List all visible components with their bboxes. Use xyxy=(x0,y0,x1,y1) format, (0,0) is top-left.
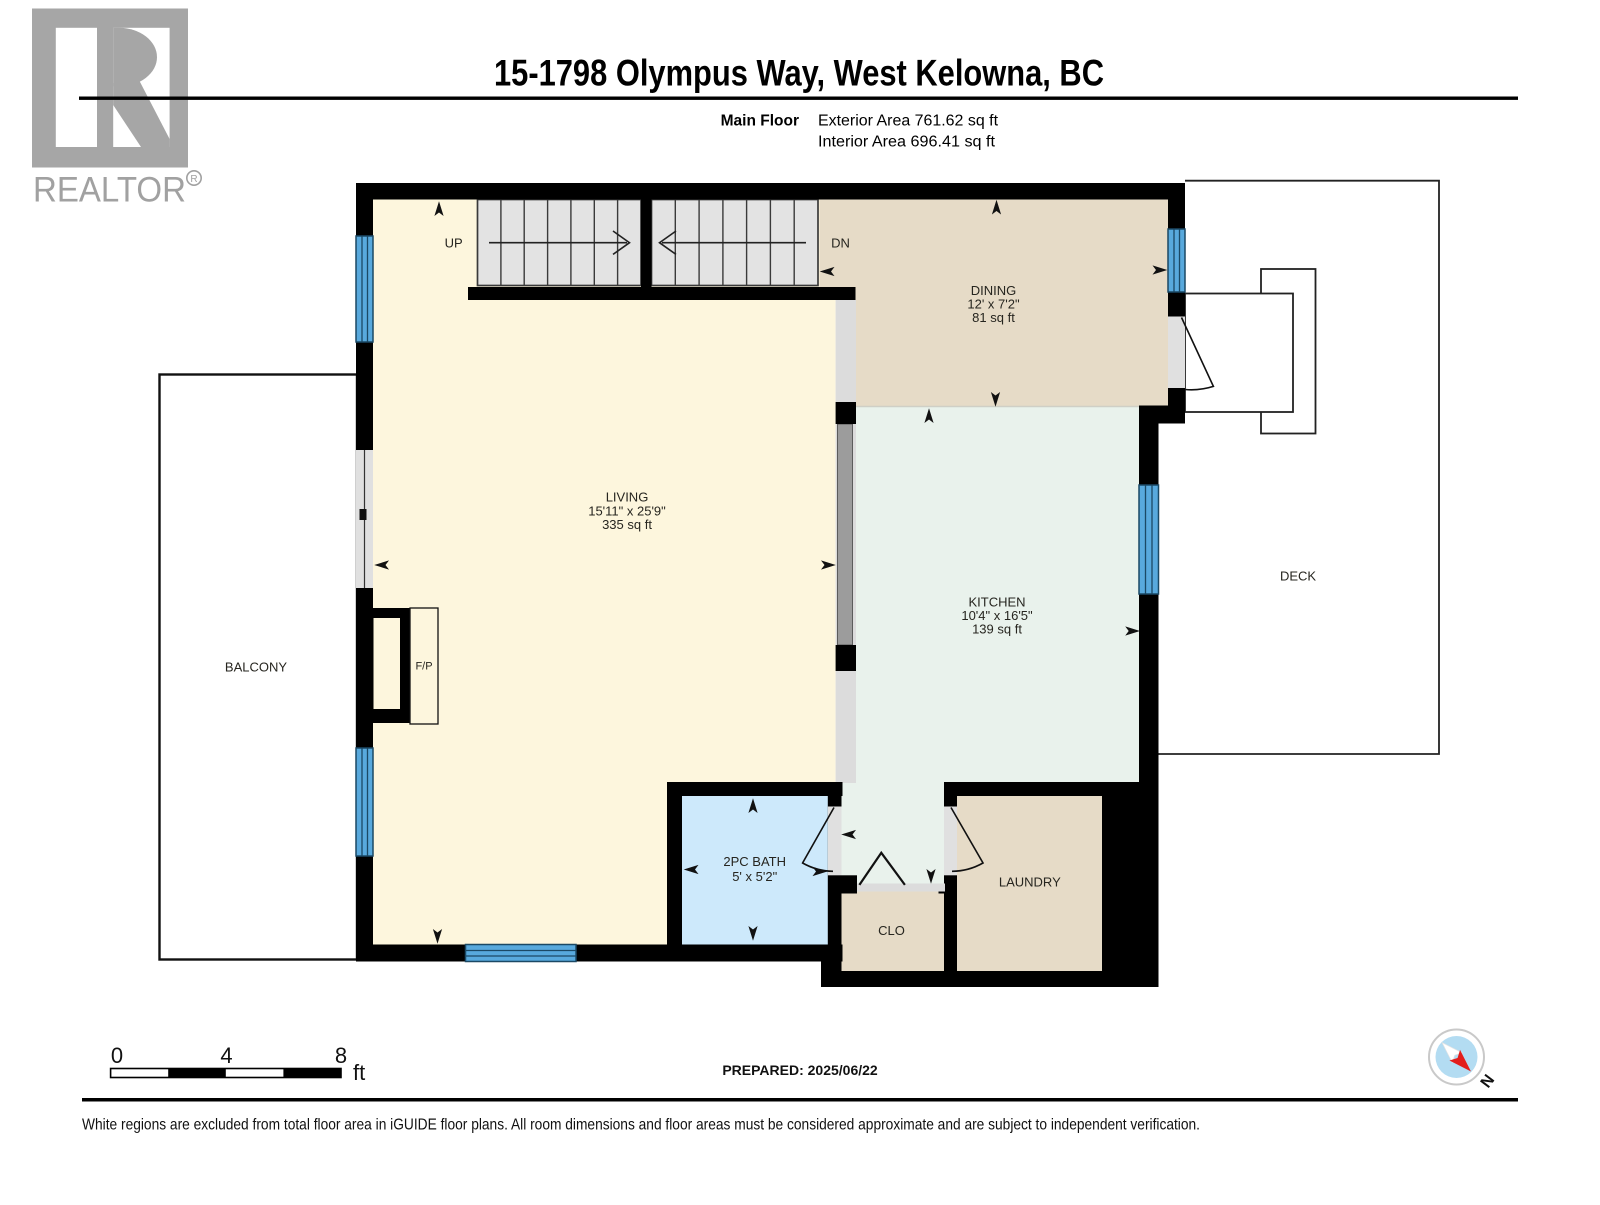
svg-text:15-1798 Olympus Way, West Kelo: 15-1798 Olympus Way, West Kelowna, BC xyxy=(494,53,1104,94)
svg-text:BALCONY: BALCONY xyxy=(225,660,287,675)
svg-text:8: 8 xyxy=(335,1043,347,1068)
svg-text:0: 0 xyxy=(111,1043,123,1068)
svg-text:ft: ft xyxy=(353,1060,365,1085)
svg-text:F/P: F/P xyxy=(415,661,432,673)
svg-text:White regions are excluded fro: White regions are excluded from total fl… xyxy=(82,1117,1200,1134)
svg-text:335 sq ft: 335 sq ft xyxy=(602,517,652,532)
svg-text:LIVING: LIVING xyxy=(606,490,649,505)
svg-text:81 sq ft: 81 sq ft xyxy=(972,310,1015,325)
svg-text:DECK: DECK xyxy=(1280,569,1316,584)
svg-text:REALTOR: REALTOR xyxy=(33,171,186,210)
svg-text:CLO: CLO xyxy=(878,923,905,938)
svg-text:R: R xyxy=(190,174,197,185)
svg-text:2PC BATH: 2PC BATH xyxy=(723,854,786,869)
svg-text:5' x 5'2": 5' x 5'2" xyxy=(732,869,777,884)
svg-text:139 sq ft: 139 sq ft xyxy=(972,622,1022,637)
svg-text:4: 4 xyxy=(220,1043,232,1068)
svg-text:Interior Area 696.41 sq ft: Interior Area 696.41 sq ft xyxy=(818,133,996,150)
svg-text:LAUNDRY: LAUNDRY xyxy=(999,875,1061,890)
svg-text:Exterior Area 761.62 sq ft: Exterior Area 761.62 sq ft xyxy=(818,112,999,129)
svg-text:UP: UP xyxy=(445,236,463,251)
svg-text:DN: DN xyxy=(831,236,850,251)
svg-text:Main Floor: Main Floor xyxy=(721,112,799,129)
svg-text:PREPARED: 2025/06/22: PREPARED: 2025/06/22 xyxy=(722,1062,878,1078)
